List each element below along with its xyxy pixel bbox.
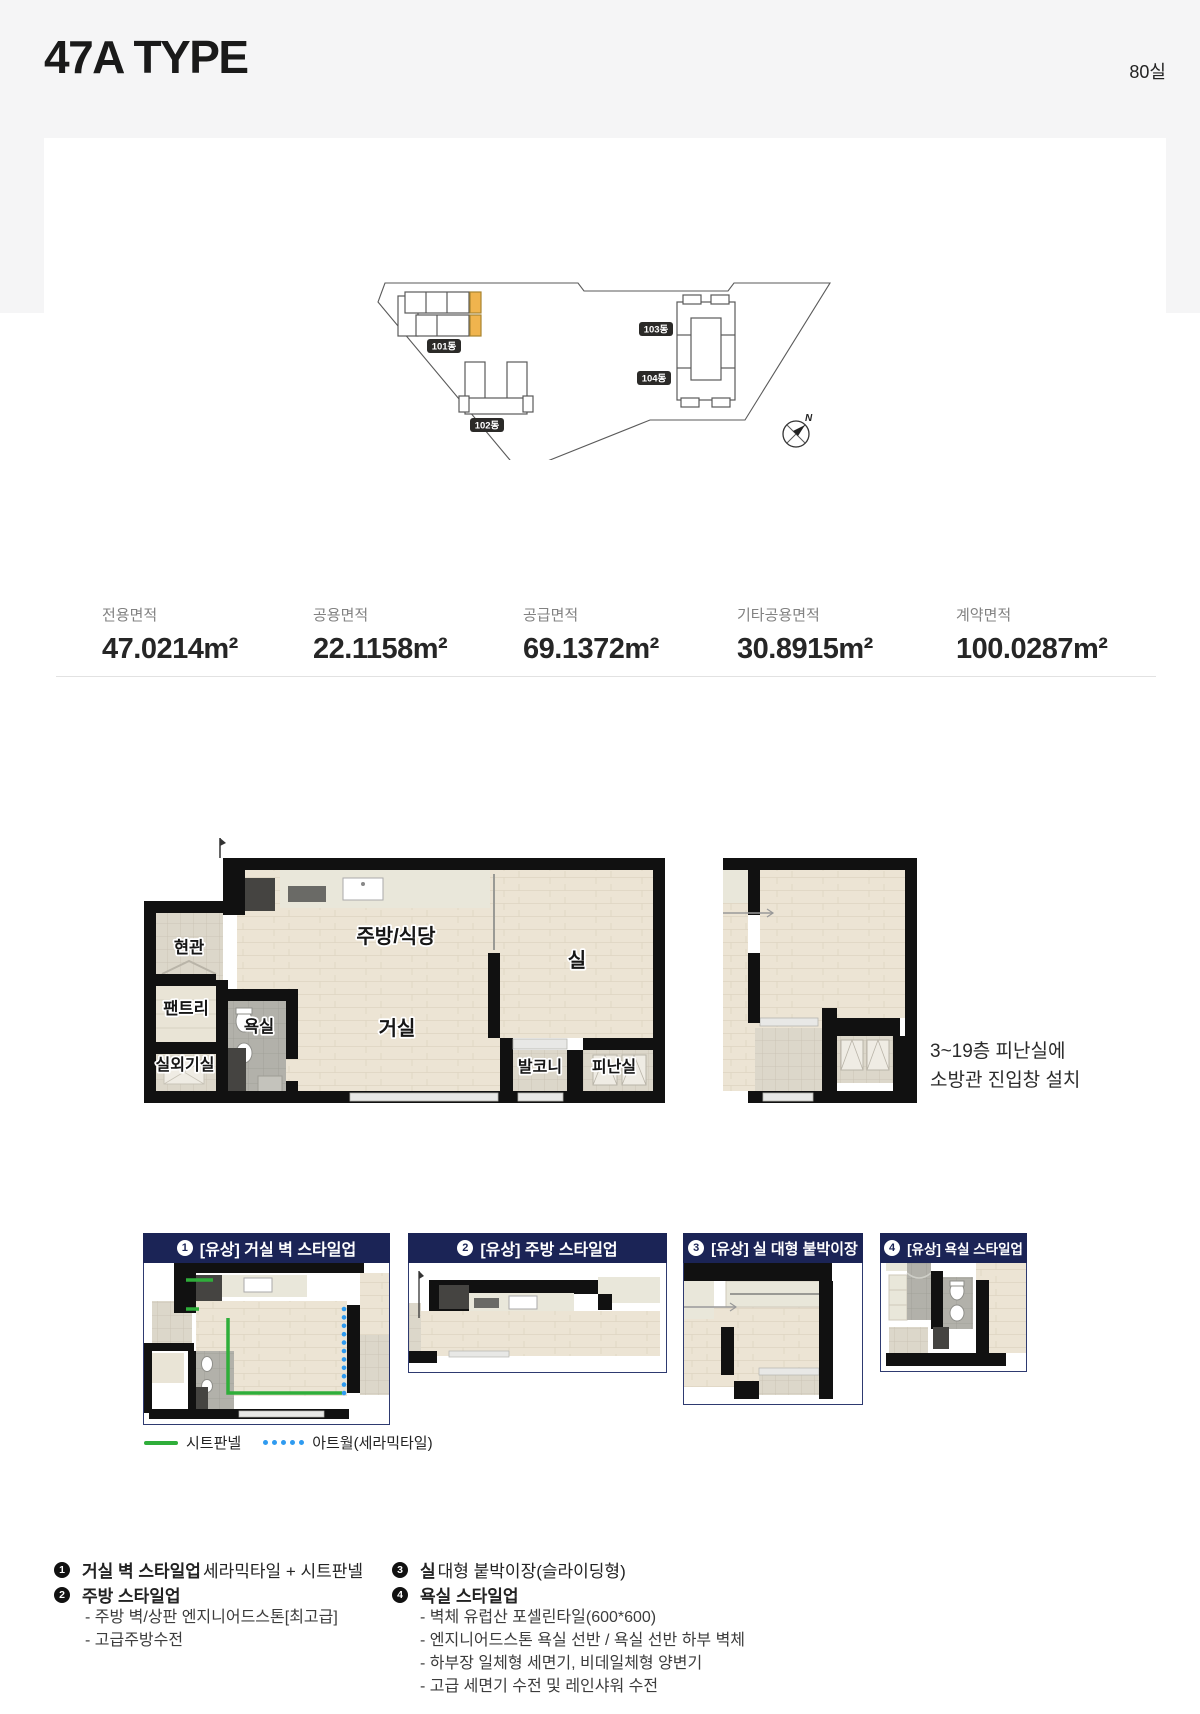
panel-title: [유상] 거실 벽 스타일업	[200, 1236, 356, 1260]
unit-count: 80실	[1129, 58, 1166, 84]
area-label: 공용면적	[313, 604, 447, 625]
area-col-exclusive: 전용면적 47.0214m²	[102, 604, 238, 666]
note-detail: 대형 붙박이장(슬라이딩형)	[438, 1562, 626, 1581]
note-title: 주방 스타일업	[82, 1587, 181, 1606]
room-label-refuge: 피난실	[592, 1058, 636, 1076]
room-label-entrance: 현관	[174, 938, 204, 957]
panel-header: 4 [유상] 욕실 스타일업	[880, 1233, 1027, 1263]
room-label-pantry: 팬트리	[163, 999, 209, 1018]
panel-header: 1 [유상] 거실 벽 스타일업	[143, 1233, 390, 1263]
panel-title: [유상] 주방 스타일업	[480, 1236, 617, 1260]
panel-title: [유상] 실 대형 붙박이장	[711, 1238, 858, 1259]
note-room-closet: 3 실대형 붙박이장(슬라이딩형)	[392, 1557, 626, 1582]
note-subitem: - 고급 세면기 수전 및 레인샤워 수전	[420, 1675, 745, 1698]
area-col-contract: 계약면적 100.0287m²	[956, 604, 1107, 666]
page: 47A TYPE 80실	[0, 0, 1200, 1714]
svg-text:104동: 104동	[642, 374, 667, 385]
note-number-badge: 2	[54, 1587, 70, 1603]
styleup-panel-kitchen: 2 [유상] 주방 스타일업	[408, 1233, 667, 1373]
building-badge-103: 103동	[639, 322, 673, 336]
area-col-other-common: 기타공용면적 30.8915m²	[737, 604, 873, 666]
styleup-panel-living-wall: 1 [유상] 거실 벽 스타일업	[143, 1233, 390, 1425]
room-label-bath: 욕실	[244, 1017, 274, 1036]
note-subitem: - 고급주방수전	[85, 1629, 338, 1652]
styleup-panel-bathroom: 4 [유상] 욕실 스타일업	[880, 1233, 1027, 1372]
panel-number-badge: 3	[688, 1240, 704, 1256]
page-title: 47A TYPE	[44, 30, 248, 84]
room-label-balcony: 발코니	[518, 1058, 562, 1076]
panel-image	[408, 1263, 667, 1373]
area-value: 100.0287m²	[956, 633, 1107, 666]
area-col-common: 공용면적 22.1158m²	[313, 604, 447, 666]
note-title: 욕실 스타일업	[420, 1587, 519, 1606]
room-label-room: 실	[568, 949, 586, 972]
sheet-panel-line-swatch	[144, 1441, 178, 1445]
area-label: 공급면적	[523, 604, 659, 625]
area-col-supply: 공급면적 69.1372m²	[523, 604, 659, 666]
styleup-legend: 시트판넬 아트월(세라믹타일)	[144, 1432, 433, 1453]
note-subitem: - 하부장 일체형 세면기, 비데일체형 양변기	[420, 1652, 745, 1675]
panel-image	[880, 1263, 1027, 1372]
site-plan: 101동 102동 103동 104동 N	[320, 245, 840, 460]
svg-text:102동: 102동	[475, 421, 500, 432]
panel-image	[683, 1263, 863, 1405]
area-value: 69.1372m²	[523, 633, 659, 666]
note-kitchen-subitems: - 주방 벽/상판 엔지니어드스톤[최고급] - 고급주방수전	[85, 1606, 338, 1652]
note-kitchen: 2 주방 스타일업	[54, 1582, 183, 1607]
area-label: 계약면적	[956, 604, 1107, 625]
refuge-note-line1: 3~19층 피난실에	[930, 1038, 1080, 1067]
note-bathroom-subitems: - 벽체 유럽산 포셀린타일(600*600) - 엔지니어드스톤 욕실 선반 …	[420, 1606, 745, 1698]
note-title: 실	[420, 1562, 436, 1581]
svg-text:N: N	[805, 413, 813, 424]
area-value: 47.0214m²	[102, 633, 238, 666]
room-label-kitchen: 주방/식당	[356, 925, 436, 948]
note-subitem: - 주방 벽/상판 엔지니어드스톤[최고급]	[85, 1606, 338, 1629]
section-divider	[56, 676, 1156, 677]
note-bathroom: 4 욕실 스타일업	[392, 1582, 521, 1607]
panel-number-badge: 1	[177, 1240, 193, 1256]
legend-artwall-label: 아트월(세라믹타일)	[312, 1432, 432, 1453]
panel-header: 3 [유상] 실 대형 붙박이장	[683, 1233, 863, 1263]
note-subitem: - 벽체 유럽산 포셀린타일(600*600)	[420, 1606, 745, 1629]
panel-number-badge: 2	[457, 1240, 473, 1256]
room-label-living: 거실	[379, 1017, 416, 1040]
panel-title: [유상] 욕실 스타일업	[907, 1238, 1023, 1258]
note-detail: 세라믹타일 + 시트판넬	[203, 1562, 363, 1581]
styleup-panel-closet: 3 [유상] 실 대형 붙박이장	[683, 1233, 863, 1405]
refuge-detail-plan	[723, 836, 917, 1105]
legend-sheet-panel-label: 시트판넬	[186, 1432, 241, 1453]
refuge-note-line2: 소방관 진입창 설치	[930, 1067, 1080, 1096]
artwall-dots-swatch	[263, 1440, 304, 1445]
note-number-badge: 3	[392, 1562, 408, 1578]
panel-number-badge: 4	[884, 1240, 900, 1256]
svg-text:103동: 103동	[644, 325, 669, 336]
panel-image	[143, 1263, 390, 1425]
note-number-badge: 1	[54, 1562, 70, 1578]
area-value: 22.1158m²	[313, 633, 447, 666]
building-badge-101: 101동	[427, 339, 461, 353]
room-label-ac-room: 실외기실	[156, 1056, 215, 1074]
area-value: 30.8915m²	[737, 633, 873, 666]
note-number-badge: 4	[392, 1587, 408, 1603]
svg-text:101동: 101동	[432, 342, 457, 353]
note-subitem: - 엔지니어드스톤 욕실 선반 / 욕실 선반 하부 벽체	[420, 1629, 745, 1652]
note-living-wall: 1 거실 벽 스타일업세라믹타일 + 시트판넬	[54, 1557, 363, 1582]
building-badge-104: 104동	[637, 371, 671, 385]
area-label: 기타공용면적	[737, 604, 873, 625]
compass-icon: N	[783, 413, 813, 447]
note-title: 거실 벽 스타일업	[82, 1562, 201, 1581]
panel-header: 2 [유상] 주방 스타일업	[408, 1233, 667, 1263]
refuge-note: 3~19층 피난실에 소방관 진입창 설치	[930, 1038, 1080, 1095]
main-floor-plan: 현관 팬트리 실외기실 욕실 주방/식당 거실 실 발코니 피난실	[128, 836, 665, 1105]
building-103-104	[677, 295, 735, 407]
building-badge-102: 102동	[470, 418, 504, 432]
area-label: 전용면적	[102, 604, 238, 625]
